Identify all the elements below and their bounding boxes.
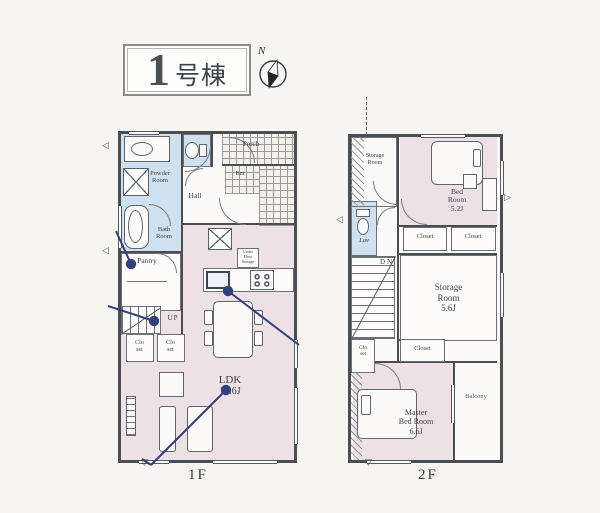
master-bed-room-size: 6.6J (379, 427, 453, 436)
chair-icon (204, 331, 213, 346)
hall-label: Hall (177, 192, 213, 201)
storage-room-small-label: Storage Room (357, 153, 393, 167)
bath-room-label: Bath Room (147, 226, 181, 241)
vent-triangle-icon: ◁ (102, 247, 109, 256)
balcony-label: Balcony (455, 393, 497, 400)
wall (211, 134, 213, 167)
bathtub-icon (124, 205, 149, 249)
wall (222, 164, 294, 166)
porch-label: Porch (231, 140, 271, 148)
closet-label: Closet (402, 345, 443, 352)
tv-board-icon (126, 396, 136, 436)
stove-icon (250, 270, 274, 290)
storage-room-size: 5.6J (411, 303, 486, 313)
window-marker (421, 134, 465, 138)
bed-room-name: Bed Room (448, 187, 466, 205)
pillow-icon (473, 149, 481, 167)
storage-hatch (351, 137, 364, 207)
closet-label: Clo set (352, 345, 374, 358)
storage-room-label: Storage Room 5.6J (411, 272, 486, 324)
door-swing-arc (377, 207, 395, 225)
under-floor-storage-label: Under Floor Storage (238, 250, 258, 264)
chair-icon (254, 310, 263, 325)
wall (397, 137, 399, 363)
closet-label: Clo set (158, 340, 183, 354)
ldk-name: LDK (219, 374, 242, 386)
window-marker (294, 340, 298, 368)
building-title: 1 号棟 (123, 44, 251, 96)
ldk-size: 18.6J (199, 386, 261, 398)
window-marker (500, 161, 504, 195)
closet-label: Closet (453, 233, 493, 240)
kitchen-sink-icon (206, 271, 230, 289)
floor-1-label: 1F (188, 467, 208, 484)
building-number: 1 (147, 47, 170, 93)
window-marker (500, 273, 504, 317)
vent-triangle-icon: ◁ (336, 216, 343, 225)
window-marker (129, 131, 159, 135)
stairs-up-label: UP (163, 314, 183, 322)
closet-label: Closet (405, 233, 445, 240)
vent-triangle-icon: ◁ (102, 142, 109, 151)
bed-room-size: 5.2J (431, 205, 483, 214)
lavatory-label: Lav (353, 237, 375, 244)
wall (181, 134, 183, 362)
closet-label: Clo set (127, 340, 152, 354)
master-bed-room-label: Master Bed Room 6.6J (379, 399, 453, 445)
toilet-icon (357, 218, 369, 235)
fridge-icon (208, 228, 232, 250)
under-floor-storage-box: Under Floor Storage (237, 248, 259, 268)
north-label: N (257, 45, 266, 57)
floor-2-label: 2F (418, 467, 438, 484)
vent-triangle-icon: ▽ (365, 459, 372, 468)
dining-table-icon (213, 301, 253, 358)
window-marker (294, 388, 298, 444)
bed-room-label: Bed Room 5.2J (431, 179, 483, 222)
window-marker (367, 460, 411, 464)
door-swing-arc (185, 146, 211, 172)
window-marker (118, 206, 122, 248)
door-swing-arc (219, 198, 246, 225)
ldk-label: LDK 18.6J (199, 361, 261, 410)
sofa-icon (159, 406, 176, 452)
storage-room-name: Storage Room (435, 282, 463, 302)
window-marker (451, 385, 455, 423)
powder-room-label: Powder Room (139, 170, 181, 185)
basin-icon (131, 142, 153, 156)
annotation-lines (0, 0, 600, 513)
vent-triangle-icon: ▽ (141, 459, 148, 468)
floorplan-canvas: 1 号棟 N U (0, 0, 600, 513)
pantry-shelf-line (127, 281, 167, 282)
desk-icon (482, 178, 497, 211)
sofa-icon (187, 406, 213, 452)
chair-icon (254, 331, 263, 346)
bathtub-basin-icon (128, 210, 143, 243)
building-suffix: 号棟 (175, 48, 227, 92)
entrance-label: Ent (227, 170, 253, 177)
chair-icon (204, 310, 213, 325)
vent-triangle-icon: ▷ (504, 194, 511, 203)
side-table-icon (159, 372, 184, 397)
dashed-line (366, 97, 367, 135)
compass-icon: N (250, 40, 298, 98)
window-marker (213, 460, 277, 464)
toilet-tank-icon (356, 209, 370, 217)
stairs-down-label: DN (377, 258, 397, 266)
pantry-label: Pantry (121, 257, 173, 266)
sink-counter-icon (124, 136, 170, 162)
floor-2-plan: Storage Room Bed Room 5.2J Closet Closet… (348, 134, 503, 463)
floor-1-plan: Under Floor Storage (118, 131, 297, 463)
pillow-icon (361, 395, 371, 415)
entrance-strip (259, 166, 294, 226)
master-bed-room-name: Master Bed Room (399, 408, 433, 426)
